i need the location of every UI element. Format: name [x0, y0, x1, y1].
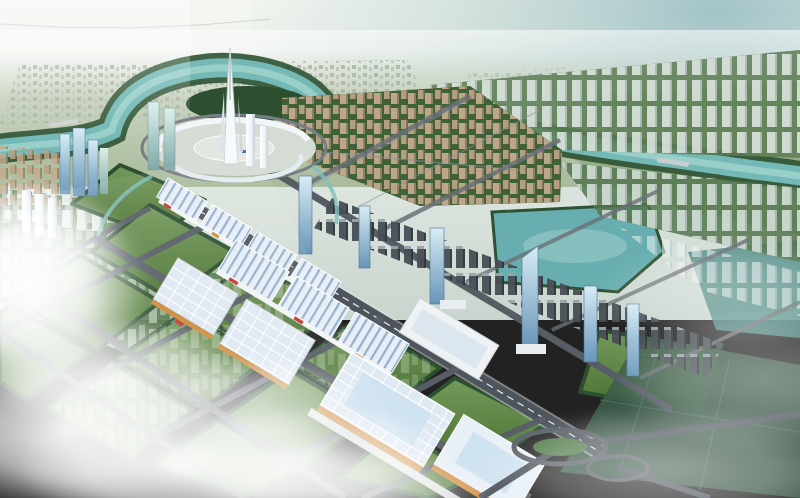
glass-tower — [584, 286, 597, 362]
tower-podium — [516, 344, 546, 354]
glass-tower-curved-top — [522, 246, 538, 348]
cloud-wisp — [145, 355, 365, 445]
rendering-canvas — [0, 0, 800, 498]
glass-tower — [359, 206, 370, 268]
aerial-city-rendering — [0, 0, 800, 498]
glass-tower — [430, 228, 444, 304]
haze-northwest — [0, 0, 190, 140]
glass-tower — [60, 134, 70, 194]
tower-podium — [440, 300, 466, 309]
